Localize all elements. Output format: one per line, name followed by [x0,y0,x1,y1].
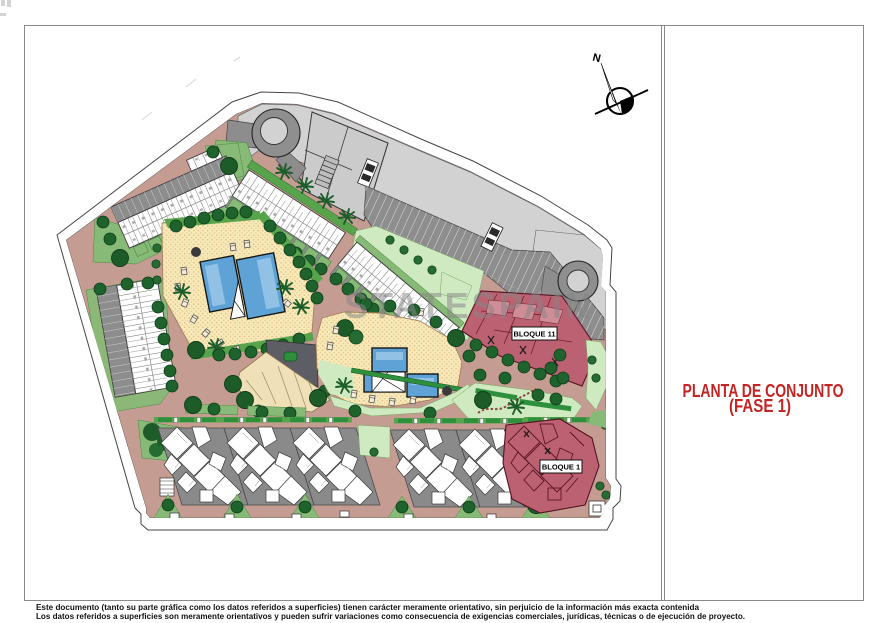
svg-text:Este documento (tanto su parte: Este documento (tanto su parte gráfica c… [36,603,700,612]
svg-text:(FASE 1): (FASE 1) [729,396,791,416]
svg-text:N: N [591,52,602,66]
svg-text:BLOQUE 11: BLOQUE 11 [513,330,555,339]
svg-text:BLOQUE 1: BLOQUE 1 [542,463,580,472]
svg-text:Los datos referidos a superfic: Los datos referidos a superficies son me… [36,612,745,621]
svg-text:STATESPAIN: STATESPAIN [344,285,594,326]
